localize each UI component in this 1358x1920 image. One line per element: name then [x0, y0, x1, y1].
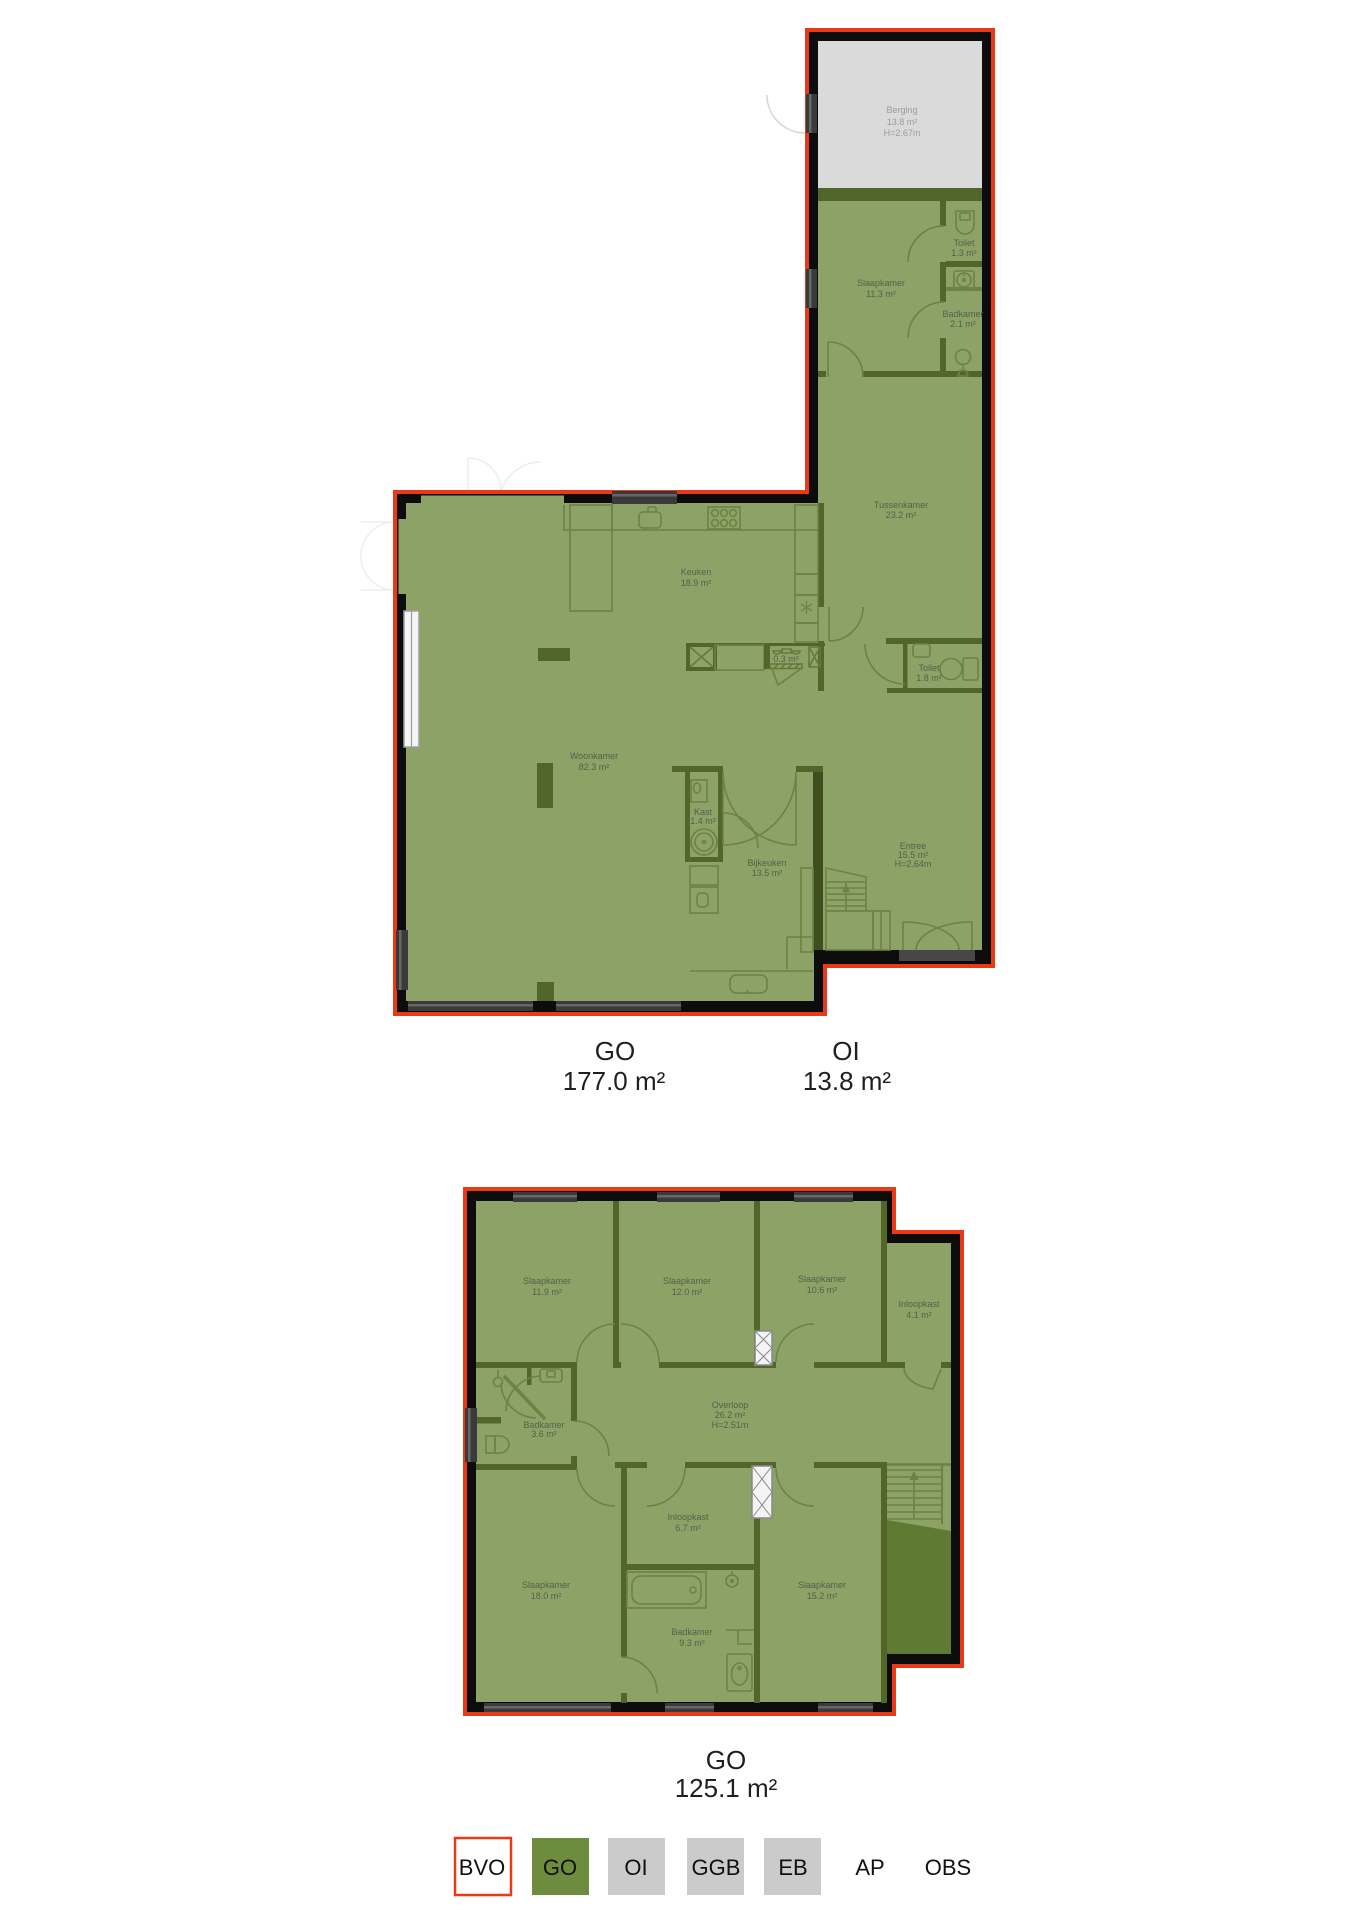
svg-text:Toilet: Toilet	[918, 663, 940, 673]
svg-text:11.3 m²: 11.3 m²	[866, 289, 896, 299]
svg-text:Slaapkamer: Slaapkamer	[522, 1580, 570, 1590]
svg-text:9.3 m²: 9.3 m²	[679, 1638, 705, 1648]
svg-text:13.5 m²: 13.5 m²	[752, 868, 783, 878]
svg-text:EB: EB	[778, 1855, 807, 1880]
svg-text:2.1 m²: 2.1 m²	[950, 319, 976, 329]
svg-text:15.2 m²: 15.2 m²	[807, 1591, 838, 1601]
svg-text:Inloopkast: Inloopkast	[667, 1512, 709, 1522]
svg-text:Tussenkamer: Tussenkamer	[874, 500, 928, 510]
svg-text:Slaapkamer: Slaapkamer	[523, 1276, 571, 1286]
svg-text:1.4 m²: 1.4 m²	[690, 816, 716, 826]
svg-text:Slaapkamer: Slaapkamer	[798, 1580, 846, 1590]
svg-text:Berging: Berging	[886, 105, 917, 115]
svg-text:125.1 m²: 125.1 m²	[675, 1773, 778, 1803]
svg-text:GO: GO	[543, 1855, 577, 1880]
svg-text:H=2.51m: H=2.51m	[712, 1420, 749, 1430]
svg-text:Slaapkamer: Slaapkamer	[663, 1276, 711, 1286]
svg-text:177.0 m²: 177.0 m²	[563, 1066, 666, 1096]
svg-text:23.2 m²: 23.2 m²	[886, 510, 917, 520]
svg-text:6.7 m²: 6.7 m²	[675, 1523, 701, 1533]
svg-text:H=2.64m: H=2.64m	[895, 859, 932, 869]
svg-text:Overloop: Overloop	[712, 1400, 749, 1410]
svg-text:Slaapkamer: Slaapkamer	[857, 278, 905, 288]
svg-text:4.1 m²: 4.1 m²	[906, 1310, 932, 1320]
svg-text:OI: OI	[624, 1855, 647, 1880]
svg-text:GGB: GGB	[692, 1855, 741, 1880]
svg-text:11.9 m²: 11.9 m²	[532, 1287, 562, 1297]
svg-text:82.3 m²: 82.3 m²	[579, 762, 610, 772]
svg-text:1.3 m²: 1.3 m²	[951, 248, 977, 258]
svg-text:H=2.67m: H=2.67m	[884, 128, 921, 138]
svg-text:Bijkeuken: Bijkeuken	[747, 858, 786, 868]
svg-text:0.3 m²: 0.3 m²	[773, 654, 799, 664]
svg-text:Badkamer: Badkamer	[671, 1627, 712, 1637]
svg-text:BVO: BVO	[459, 1855, 505, 1880]
svg-text:GO: GO	[595, 1036, 635, 1066]
svg-text:18.9 m²: 18.9 m²	[681, 578, 712, 588]
svg-text:Keuken: Keuken	[681, 567, 712, 577]
svg-text:13.8 m²: 13.8 m²	[803, 1066, 891, 1096]
svg-text:Inloopkast: Inloopkast	[898, 1299, 940, 1309]
svg-text:Badkamer: Badkamer	[942, 309, 983, 319]
svg-text:OBS: OBS	[925, 1855, 971, 1880]
svg-text:3.6 m²: 3.6 m²	[531, 1429, 557, 1439]
svg-text:13.8 m²: 13.8 m²	[887, 117, 918, 127]
svg-text:Slaapkamer: Slaapkamer	[798, 1274, 846, 1284]
svg-text:Toilet: Toilet	[953, 238, 975, 248]
svg-text:1.8 m²: 1.8 m²	[916, 673, 942, 683]
svg-text:GO: GO	[706, 1745, 746, 1775]
svg-text:12.0 m²: 12.0 m²	[672, 1287, 703, 1297]
svg-text:AP: AP	[855, 1855, 884, 1880]
svg-text:Woonkamer: Woonkamer	[570, 751, 618, 761]
svg-text:26.2 m²: 26.2 m²	[715, 1410, 746, 1420]
svg-text:10.6 m²: 10.6 m²	[807, 1285, 838, 1295]
svg-text:OI: OI	[832, 1036, 859, 1066]
svg-text:18.0 m²: 18.0 m²	[531, 1591, 562, 1601]
